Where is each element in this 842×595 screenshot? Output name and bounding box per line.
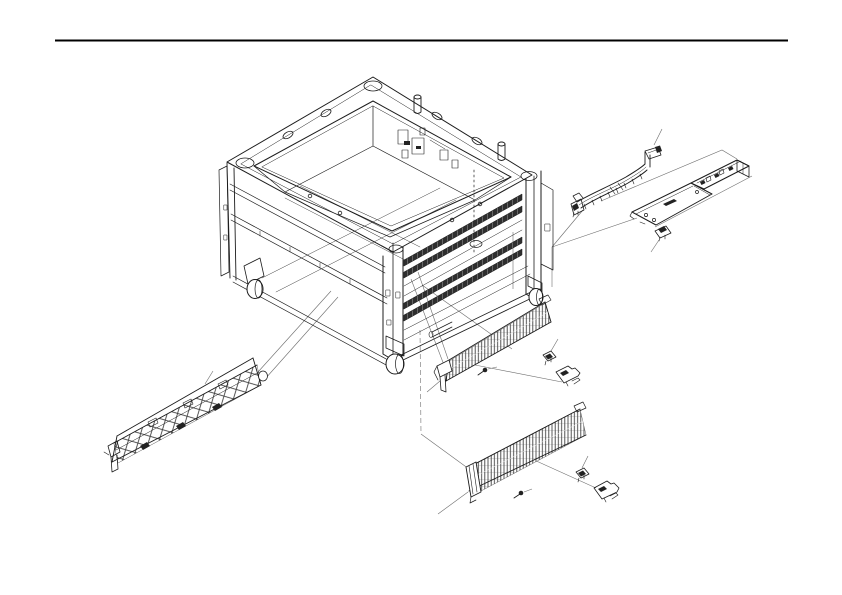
corner-bracket-upper xyxy=(556,366,580,386)
service-manual-page xyxy=(0,0,842,595)
leader-cable-top xyxy=(654,129,662,145)
leader-rail1-bottom xyxy=(427,381,440,392)
cable-retaining-clip xyxy=(655,226,671,241)
exploded-parts-diagram xyxy=(0,0,842,595)
right-face-rails xyxy=(404,194,530,340)
leader-clip-top xyxy=(651,240,659,252)
corner-bracket-lower xyxy=(594,481,619,502)
rail-screw-lower xyxy=(514,491,523,498)
drawing-ink xyxy=(104,77,749,503)
crossmember-rail-lower xyxy=(466,402,586,503)
rail-screw-upper xyxy=(478,368,487,375)
chassis-top-opening xyxy=(254,101,511,231)
leader-left-rail-b xyxy=(258,291,331,372)
rail-clip-upper xyxy=(543,351,556,365)
leader-clip2-stub xyxy=(582,456,588,468)
leader-lines xyxy=(205,129,752,514)
chassis-opening-inner-line xyxy=(262,106,504,226)
top-mounting-bracket xyxy=(630,160,749,225)
crossmember-rail-upper xyxy=(434,295,551,392)
leader-rail1-bracket xyxy=(475,365,562,382)
leader-left-rail-a xyxy=(265,297,338,379)
explosion-axis-bend xyxy=(421,434,469,469)
leader-chassis-to-bracket xyxy=(552,218,637,247)
caster-left xyxy=(244,258,264,299)
leader-rail2-bottom xyxy=(438,492,468,514)
alignment-pegs xyxy=(414,95,505,161)
caster-front xyxy=(386,336,404,374)
leader-clip1-stub xyxy=(551,339,558,351)
leader-screw2-stub xyxy=(524,489,532,492)
front-rail-assembly xyxy=(104,358,268,472)
